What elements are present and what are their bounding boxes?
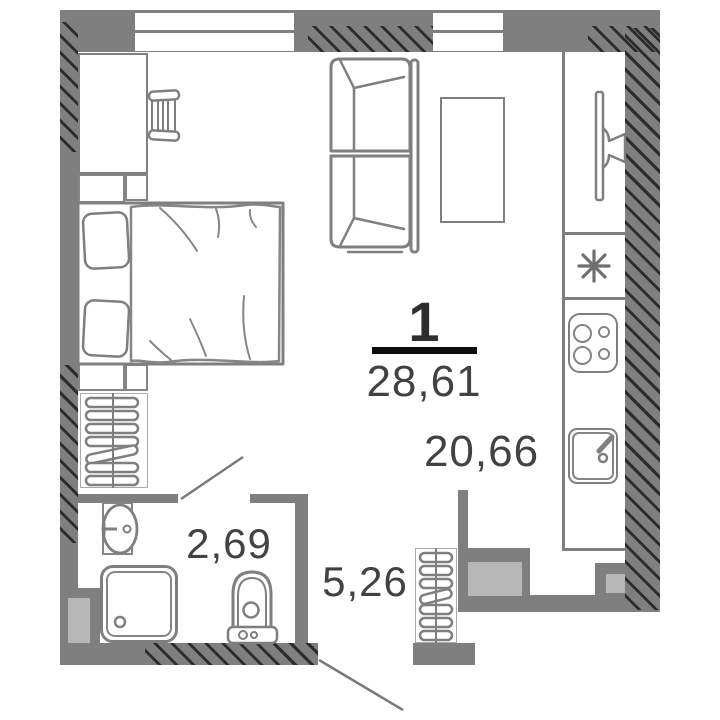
fridge-asterisk-icon	[579, 251, 609, 281]
sofa	[331, 59, 418, 252]
fraction-line	[372, 347, 477, 354]
living-room-area-label: 20,66	[424, 430, 539, 472]
radiator-hall-icon	[419, 548, 452, 643]
tv-icon	[596, 92, 625, 200]
shower-drain-icon	[115, 617, 125, 627]
bathroom-area-label: 2,69	[183, 523, 275, 563]
bathroom-door-swing	[181, 457, 243, 499]
entry-door-swing	[319, 660, 403, 710]
total-area-label: 28,61	[360, 360, 488, 404]
bed	[78, 203, 283, 364]
radiator-left-icon	[86, 393, 139, 488]
washbasin-icon	[103, 505, 137, 553]
hallway-area-label: 5,26	[320, 561, 410, 601]
floor-plan: 1 28,61 20,66 2,69 5,26	[0, 0, 720, 720]
desk-chair-icon	[149, 90, 179, 141]
kitchen-sink-faucet-icon	[599, 437, 612, 462]
toilet-icon	[228, 572, 277, 643]
apartment-number: 1	[372, 294, 477, 346]
